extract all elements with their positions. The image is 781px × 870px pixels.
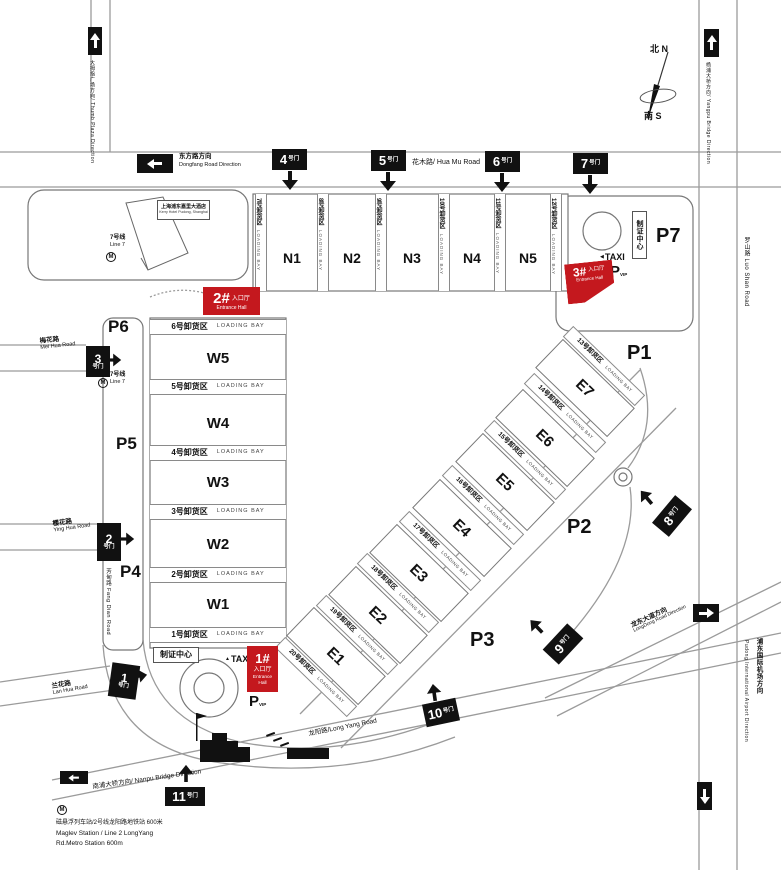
- loading-bay-2-en: LOADING BAY: [217, 572, 265, 578]
- loading-bay-5-en: LOADING BAY: [217, 384, 265, 390]
- gate-7-arrow-icon: [582, 175, 598, 195]
- parking-p5-label: P5: [116, 434, 137, 454]
- loading-bay-9-label: 9号卸货区: [375, 198, 381, 225]
- metro-line7-north-label: 7号线 Line 7: [110, 235, 125, 248]
- hall-n5-label: N5: [508, 250, 548, 266]
- parking-p7-label: P7: [656, 225, 680, 248]
- gate-4-arrow-icon: [282, 171, 298, 191]
- loading-bay-7: 7号卸货区LOADING BAY: [255, 194, 267, 291]
- vip-parking-p: P: [249, 693, 259, 710]
- gate-6-number: 6: [493, 155, 500, 168]
- gate-3-suffix: 号门: [92, 365, 103, 371]
- loading-bay-8-en: LOADING BAY: [318, 230, 323, 271]
- loading-bay-5-label: 5号卸货区: [171, 383, 207, 391]
- compass-north-label: 北 N: [650, 44, 668, 54]
- hall-e4-label: E4: [449, 516, 474, 541]
- parking-p4-label: P4: [120, 562, 141, 582]
- entrance-1-en: Entrance Hall: [250, 675, 276, 686]
- loading-bay-10-en: LOADING BAY: [439, 234, 444, 275]
- gate-6-suffix: 号门: [501, 159, 512, 165]
- entrance-3-en: Entrance Hall: [576, 276, 603, 283]
- entrance-2-zh: 入口厅: [232, 296, 250, 302]
- entrance-3-zh: 入口厅: [588, 267, 605, 274]
- gate-7-number: 7: [581, 157, 588, 170]
- hall-w4-label: W4: [198, 415, 238, 432]
- loading-bay-4-en: LOADING BAY: [217, 450, 265, 456]
- loading-bay-7-label: 7号卸货区: [255, 198, 261, 225]
- loading-bay-3-label: 3号卸货区: [171, 508, 207, 516]
- maglev-note-en2: Rd.Metro Station 600m: [56, 840, 123, 847]
- luoshan-road-label: 罗山路 Luo Shan Road: [742, 237, 751, 327]
- hall-e5-label: E5: [492, 470, 517, 495]
- nanpu-arrow-icon: [60, 771, 88, 784]
- loading-bay-8: 8号卸货区LOADING BAY: [317, 194, 329, 291]
- fangdian-road-label: 芳甸路 Fang Dian Road: [104, 568, 112, 653]
- hotel-en: Kerry Hotel Pudong, Shanghai: [159, 211, 208, 215]
- maglev-note-zh: 磁悬浮列车站/2号线龙阳路地铁站 600米: [56, 820, 163, 827]
- maglev-note-en1: Maglev Station / Line 2 LongYang: [56, 830, 153, 837]
- gate-11-suffix: 号门: [187, 794, 198, 800]
- loading-bay-6-label: 6号卸货区: [171, 323, 207, 331]
- gate-5: 5号门: [371, 150, 406, 171]
- loading-bay-11-label: 11号卸货区: [494, 198, 500, 228]
- gate-9-suffix: 号门: [560, 635, 572, 647]
- parking-p3-label: P3: [470, 629, 494, 652]
- gate-5-suffix: 号门: [387, 158, 398, 164]
- gate-8-suffix: 号门: [669, 507, 680, 519]
- loading-bay-1: 1号卸货区LOADING BAY: [150, 627, 286, 643]
- gate-1-suffix: 号门: [117, 683, 129, 690]
- gate-4-suffix: 号门: [288, 157, 299, 163]
- hall-e6-label: E6: [532, 426, 557, 451]
- hall-w2-label: W2: [198, 536, 238, 553]
- gate-10-arrow-icon: [426, 682, 443, 702]
- gate-3-number: 3: [95, 353, 102, 365]
- loading-bay-7-en: LOADING BAY: [256, 230, 261, 271]
- loading-bay-12: 12号卸货区LOADING BAY: [550, 194, 562, 291]
- hotel-label: 上海浦东嘉里大酒店 Kerry Hotel Pudong, Shanghai: [157, 200, 210, 220]
- entrance-hall-1: 1# 入口厅 Entrance Hall: [247, 646, 278, 692]
- loading-bay-6-en: LOADING BAY: [217, 324, 265, 330]
- gate-2: 2号门: [97, 523, 121, 561]
- metro-line7-west-label: 7号线 Line 7: [110, 372, 125, 385]
- taxi-up-arrow-icon: ▲: [225, 656, 230, 662]
- thumb-plaza-arrow-icon: [88, 27, 102, 55]
- loading-bay-4-label: 4号卸货区: [171, 449, 207, 457]
- metro-icon-maglev: M: [57, 805, 67, 815]
- hall-e7-label: E7: [572, 376, 597, 401]
- parking-p6-label: P6: [108, 317, 129, 337]
- line7-zh-2: 7号线: [110, 372, 125, 379]
- parking-p2-label: P2: [567, 516, 591, 539]
- gate-11-arrow-icon: [179, 764, 193, 782]
- entrance-2-en: Entrance Hall: [216, 306, 246, 311]
- taxi-left-arrow-icon: ◀: [600, 254, 604, 260]
- hall-e1-label: E1: [323, 644, 348, 669]
- hall-w1-label: W1: [198, 596, 238, 613]
- gate-2-suffix: 号门: [103, 545, 114, 551]
- hall-w5-label: W5: [198, 350, 238, 367]
- airport-direction-zh: 浦东国际机场方向: [753, 638, 763, 768]
- sniec-venue-map: 大拇指广场方向/ Thumb Plaza Direction 东方路方向 Don…: [0, 0, 781, 870]
- badge-center-ne-label: 制证中心: [636, 220, 643, 250]
- vip-parking-sub2: VIP: [620, 272, 627, 277]
- loading-bay-1-label: 1号卸货区: [171, 631, 207, 639]
- metro-icon-west: M: [98, 378, 108, 388]
- loading-bay-5: 5号卸货区LOADING BAY: [150, 379, 286, 395]
- vip-parking-south: PVIP: [249, 694, 266, 709]
- gate-6: 6号门: [485, 151, 520, 172]
- entrance-2-number: 2#: [213, 291, 230, 306]
- hall-w3-label: W3: [198, 474, 238, 491]
- huamu-road-label: 花木路/ Hua Mu Road: [412, 159, 480, 167]
- thumb-plaza-direction-label: 大拇指广场方向/ Thumb Plaza Direction: [89, 60, 96, 190]
- gate-3: 3号门: [86, 346, 110, 377]
- hall-n4-label: N4: [452, 250, 492, 266]
- airport-direction-en: Pudong International Airport Direction: [743, 640, 749, 790]
- gate-7-suffix: 号门: [589, 161, 600, 167]
- parking-p1-label: P1: [627, 342, 651, 365]
- line7-zh: 7号线: [110, 235, 125, 242]
- badge-center-northeast: 制证中心: [632, 211, 647, 259]
- gate-5-number: 5: [379, 154, 386, 167]
- gate-5-arrow-icon: [380, 172, 396, 192]
- gate-10-suffix: 号门: [443, 707, 455, 715]
- gate-1: 1号门: [108, 662, 140, 700]
- dongfang-direction-zh: 东方路方向: [179, 153, 212, 160]
- dongfang-arrow-icon: [137, 154, 173, 173]
- loading-bay-9-en: LOADING BAY: [376, 230, 381, 271]
- loading-bay-10: 10号卸货区LOADING BAY: [438, 194, 450, 291]
- badge-center-south: 制证中心: [153, 647, 199, 663]
- loading-bay-10-label: 10号卸货区: [438, 198, 444, 229]
- loading-bay-2-label: 2号卸货区: [171, 571, 207, 579]
- loading-bay-1-en: LOADING BAY: [217, 632, 265, 638]
- loading-bay-2: 2号卸货区LOADING BAY: [150, 567, 286, 583]
- hall-n1-label: N1: [272, 250, 312, 266]
- hall-n2-label: N2: [332, 250, 372, 266]
- loading-bay-8-label: 8号卸货区: [317, 198, 323, 225]
- longdong-arrow-icon: [693, 604, 719, 622]
- yangpu-arrow-icon: [704, 29, 719, 57]
- gate-10-number: 10: [427, 706, 444, 722]
- loading-bay-12-label: 12号卸货区: [550, 198, 556, 229]
- gate-6-arrow-icon: [494, 173, 510, 193]
- compass-needle: [639, 52, 676, 118]
- hall-e3-label: E3: [406, 561, 431, 586]
- gate-2-arrow-icon: [119, 533, 135, 546]
- airport-arrow-icon: [697, 782, 712, 810]
- gate-11: 11号门: [165, 787, 205, 806]
- metro-icon-north: M: [106, 252, 116, 262]
- loading-bay-11: 11号卸货区LOADING BAY: [494, 194, 506, 291]
- loading-bay-9: 9号卸货区LOADING BAY: [375, 194, 387, 291]
- loading-bay-4: 4号卸货区LOADING BAY: [150, 445, 286, 461]
- loading-bay-3: 3号卸货区LOADING BAY: [150, 504, 286, 520]
- line7-en-2: Line 7: [110, 379, 125, 385]
- line7-en: Line 7: [110, 242, 125, 248]
- entrance-1-number: 1#: [255, 652, 269, 665]
- hall-n3-label: N3: [392, 250, 432, 266]
- vip-parking-sub: VIP: [259, 702, 266, 707]
- gate-11-number: 11: [172, 790, 186, 803]
- dongfang-direction-en: Dongfang Road Direction: [179, 162, 241, 168]
- compass-south-label: 南 S: [644, 111, 662, 121]
- gate-7: 7号门: [573, 153, 608, 174]
- loading-bay-11-en: LOADING BAY: [495, 233, 500, 274]
- hall-e2-label: E2: [365, 603, 390, 628]
- gate-4-number: 4: [280, 153, 287, 166]
- yangpu-direction-label: 杨浦大桥方向/ Yangpu Bridge Direction: [705, 62, 712, 202]
- entrance-hall-2: 2#入口厅 Entrance Hall: [203, 287, 260, 315]
- gate-4: 4号门: [272, 149, 307, 170]
- loading-bay-3-en: LOADING BAY: [217, 509, 265, 515]
- entrance-1-zh: 入口厅: [253, 667, 271, 673]
- loading-bay-6: 6号卸货区LOADING BAY: [150, 319, 286, 335]
- loading-bay-12-en: LOADING BAY: [551, 234, 556, 275]
